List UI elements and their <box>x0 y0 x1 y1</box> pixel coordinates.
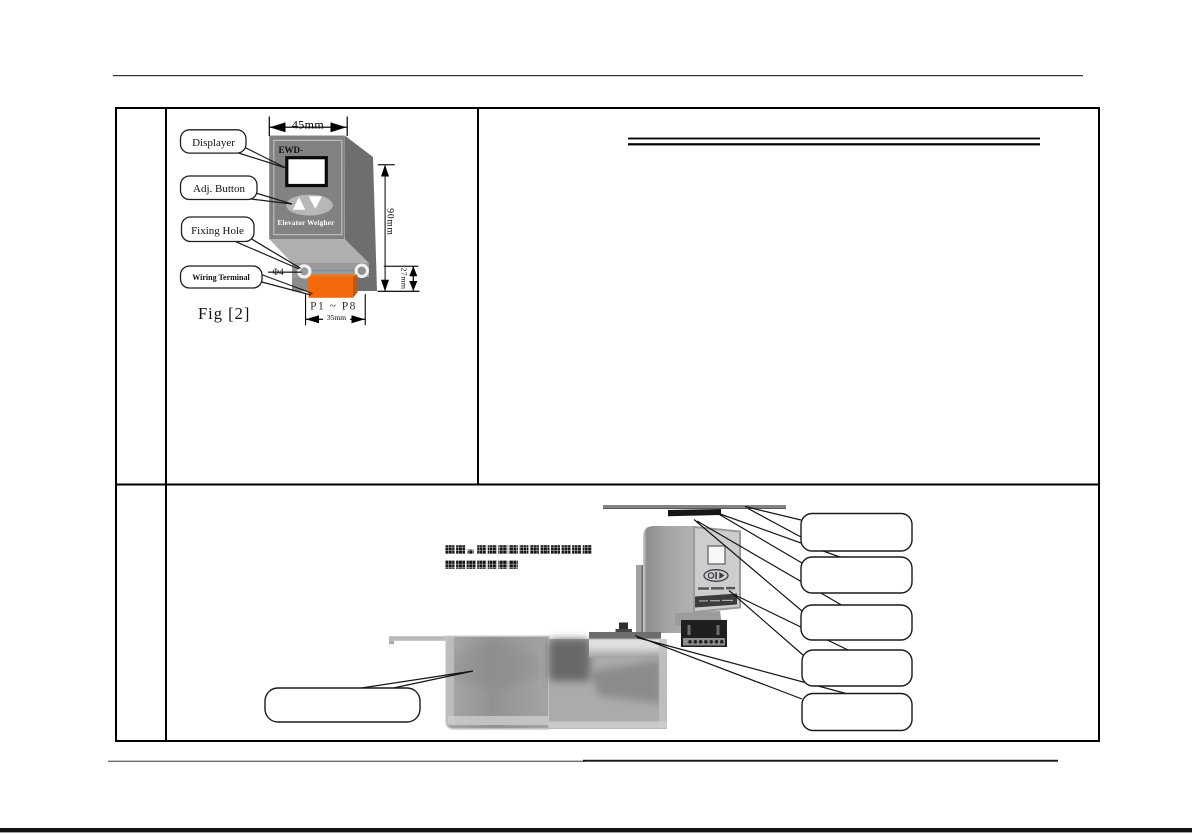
svg-text:EWD-: EWD- <box>279 145 304 155</box>
svg-text:Elevator Weigher: Elevator Weigher <box>277 219 335 227</box>
svg-text:P1 ~ P8: P1 ~ P8 <box>310 301 357 313</box>
svg-text:Displayer: Displayer <box>192 137 235 149</box>
svg-text:Adj. Button: Adj. Button <box>193 183 245 195</box>
svg-text:35mm: 35mm <box>327 313 346 322</box>
svg-text:Fixing Hole: Fixing Hole <box>191 225 244 237</box>
svg-text:27mm: 27mm <box>400 268 409 290</box>
svg-text:Fig [2]: Fig [2] <box>198 304 250 323</box>
svg-text:Wiring Terminal: Wiring Terminal <box>192 273 250 282</box>
svg-text:90mm: 90mm <box>384 208 394 235</box>
svg-text:45mm: 45mm <box>292 118 325 132</box>
svg-text:Φ4: Φ4 <box>273 267 285 277</box>
